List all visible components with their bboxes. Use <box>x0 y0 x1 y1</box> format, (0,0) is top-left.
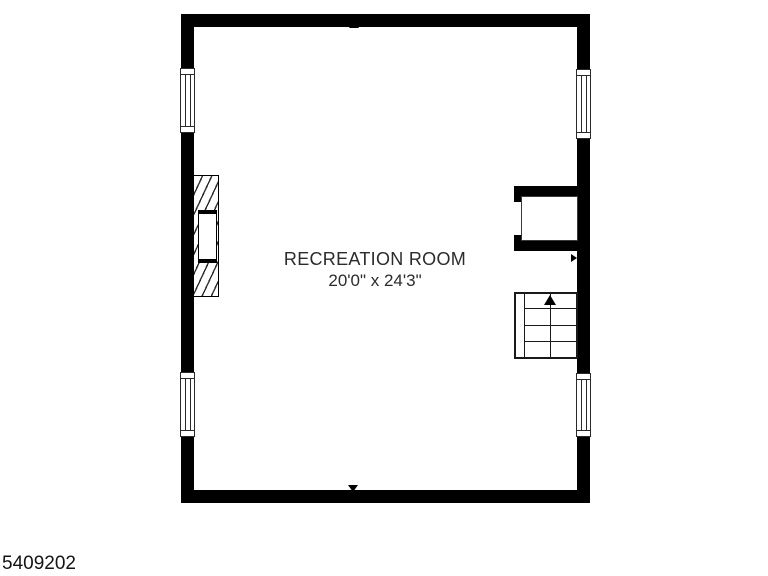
closet-wall-bottom <box>514 241 578 251</box>
wall-top <box>181 14 590 27</box>
fireplace-firebox <box>198 210 217 263</box>
room-dimensions: 20'0" x 24'3" <box>255 271 495 291</box>
closet-wall-top <box>514 186 578 196</box>
closet-wall-top-cap <box>514 186 521 202</box>
closet-interior <box>521 196 578 241</box>
room-name: RECREATION ROOM <box>255 249 495 269</box>
fireplace-marker-icon <box>188 253 193 261</box>
window-left-top-icon <box>180 68 195 133</box>
up-arrow-icon <box>544 295 556 305</box>
staircase <box>514 292 578 359</box>
door-marker-icon <box>571 254 577 262</box>
window-right-bottom-icon <box>576 373 591 437</box>
entry-marker-top-icon <box>349 21 359 28</box>
window-right-top-icon <box>576 69 591 139</box>
entry-marker-bottom-icon <box>348 485 358 492</box>
room-label: RECREATION ROOM 20'0" x 24'3" <box>255 249 495 291</box>
listing-id: 5409202 <box>2 553 76 575</box>
wall-bottom <box>181 490 590 503</box>
window-left-bottom-icon <box>180 372 195 437</box>
closet-wall-bottom-cap <box>514 235 521 251</box>
floorplan-canvas: RECREATION ROOM 20'0" x 24'3" 5409202 <box>0 0 768 576</box>
